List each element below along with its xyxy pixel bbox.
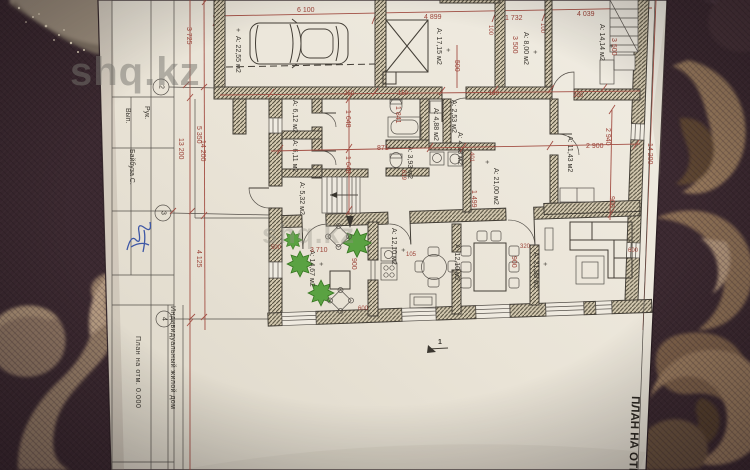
svg-text:900: 900: [510, 256, 517, 268]
svg-text:900: 900: [608, 196, 615, 208]
svg-text:Байбуза С.: Байбуза С.: [128, 149, 136, 185]
svg-text:А: 5,32 м2: А: 5,32 м2: [298, 182, 305, 215]
svg-text:+: +: [317, 262, 324, 266]
svg-text:А: 6,11 м2: А: 6,11 м2: [291, 140, 298, 172]
svg-text:3 500: 3 500: [511, 36, 518, 54]
svg-text:401: 401: [468, 152, 474, 163]
svg-text:+: +: [541, 262, 548, 266]
svg-text:150: 150: [398, 91, 409, 97]
svg-text:А: 3,93 м2: А: 3,93 м2: [406, 146, 413, 179]
svg-text:Рук.: Рук.: [143, 106, 150, 119]
svg-text:1 648: 1 648: [344, 110, 351, 128]
svg-text:А: 2,53 м2: А: 2,53 м2: [450, 100, 457, 133]
svg-text:600: 600: [628, 248, 639, 254]
svg-text:А: 12,10 м2: А: 12,10 м2: [453, 244, 460, 281]
svg-text:4: 4: [161, 317, 168, 321]
svg-text:500: 500: [453, 60, 460, 72]
svg-text:619: 619: [400, 170, 406, 181]
svg-text:300: 300: [573, 93, 584, 99]
svg-text:А: 17,15 м2: А: 17,15 м2: [435, 28, 442, 65]
svg-text:1 841: 1 841: [394, 106, 401, 124]
svg-text:План на отм. 0.000: План на отм. 0.000: [134, 336, 141, 409]
svg-text:900: 900: [350, 258, 357, 270]
svg-text:+: +: [399, 248, 406, 252]
svg-text:А: 8,00 м2: А: 8,00 м2: [522, 32, 529, 65]
svg-text:320: 320: [520, 244, 531, 250]
svg-text:А: 12,10 м2: А: 12,10 м2: [390, 228, 397, 265]
svg-text:1 648: 1 648: [344, 156, 351, 174]
svg-text:100: 100: [487, 25, 493, 36]
svg-text:2 900: 2 900: [586, 143, 604, 150]
svg-text:13 200: 13 200: [177, 138, 184, 160]
svg-text:А: 6,12 м2: А: 6,12 м2: [291, 100, 298, 133]
svg-text:1: 1: [438, 339, 442, 346]
svg-text:А: 21,00 м2: А: 21,00 м2: [492, 168, 499, 205]
svg-text:А: 21,88 м2: А: 21,88 м2: [532, 252, 539, 289]
svg-text:6 100: 6 100: [297, 7, 315, 14]
svg-text:+: +: [483, 160, 490, 164]
svg-text:5 350: 5 350: [195, 126, 202, 144]
svg-text:3 725: 3 725: [185, 27, 192, 45]
svg-text:1 499: 1 499: [470, 190, 477, 208]
svg-text:А: 11,43 м2: А: 11,43 м2: [566, 136, 573, 172]
svg-text:А: 14,14 м2: А: 14,14 м2: [598, 24, 605, 61]
svg-text:Вып.: Вып.: [124, 108, 131, 123]
svg-text:А: 4,88 м2: А: 4,88 м2: [432, 108, 439, 141]
svg-text:600: 600: [358, 306, 369, 312]
svg-text:ПЛАН НА ОТМ.: ПЛАН НА ОТМ.: [626, 396, 641, 470]
svg-text:+: +: [444, 48, 451, 52]
svg-text:Индивидуальный жилой дом: Индивидуальный жилой дом: [169, 306, 177, 409]
svg-text:120: 120: [489, 91, 500, 97]
svg-text:3: 3: [160, 211, 167, 215]
svg-text:105: 105: [406, 252, 417, 258]
svg-text:3 500: 3 500: [610, 38, 617, 56]
svg-text:250: 250: [344, 91, 355, 97]
svg-text:4 125: 4 125: [195, 250, 202, 268]
svg-text:+: +: [234, 28, 241, 32]
svg-text:4 039: 4 039: [577, 11, 595, 18]
svg-text:2 940: 2 940: [604, 128, 611, 146]
svg-text:871: 871: [377, 145, 389, 152]
svg-text:100: 100: [539, 23, 545, 34]
svg-text:+: +: [531, 50, 538, 54]
svg-text:А: 22,55 м2: А: 22,55 м2: [234, 36, 241, 73]
svg-text:1 732: 1 732: [505, 15, 523, 22]
svg-text:А: 14,67 м2: А: 14,67 м2: [308, 250, 315, 287]
